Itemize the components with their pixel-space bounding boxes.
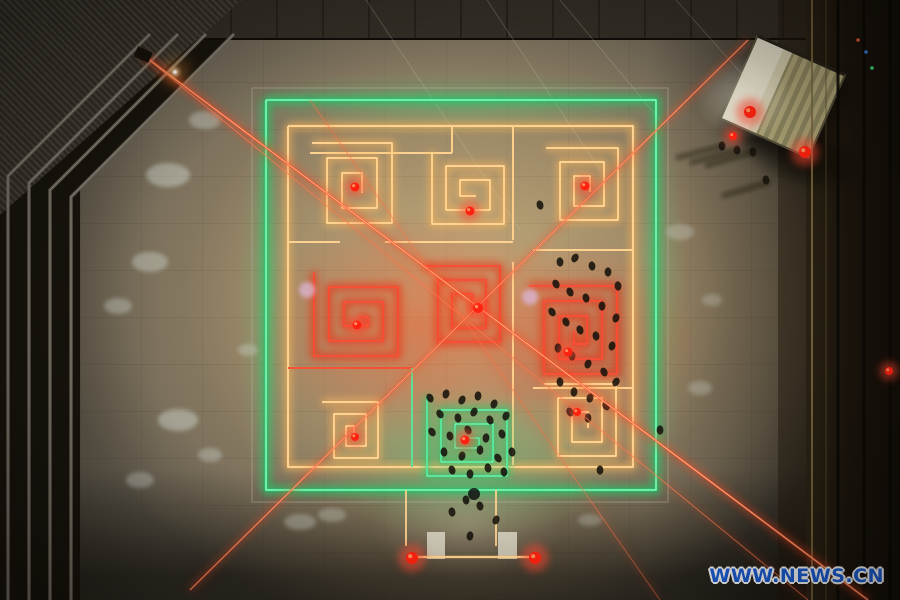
- news-watermark: WWW.NEWS.CN: [709, 565, 884, 587]
- maze-entrance: [406, 488, 534, 559]
- scene-overlay: [0, 0, 900, 600]
- roadway-lines: [812, 0, 890, 600]
- aerial-night-maze-photo: WWW.NEWS.CN: [0, 0, 900, 600]
